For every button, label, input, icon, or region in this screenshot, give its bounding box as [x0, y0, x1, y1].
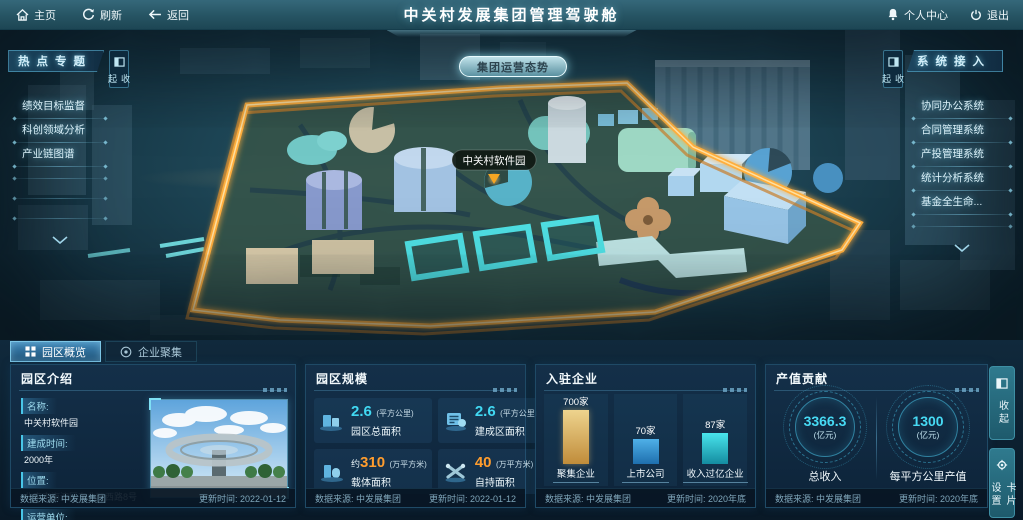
divider — [13, 118, 107, 119]
bar-group: 70家 上市公司 — [614, 394, 678, 486]
tower-icon — [319, 460, 345, 484]
gear-icon — [996, 458, 1008, 476]
bar-value-label: 70家 — [635, 423, 655, 437]
hot-topics-expand-button[interactable] — [10, 228, 110, 249]
gauge-total-revenue: 3366.3 (亿元) 总收入 — [774, 391, 876, 486]
divider — [912, 118, 1012, 119]
hot-topic-item[interactable]: 产业链图谱 — [10, 144, 110, 165]
update-time: 更新时间: 2022-01-12 — [429, 492, 516, 505]
divider — [912, 142, 1012, 143]
back-arrow-icon — [148, 9, 162, 20]
map-marker-label: 中关村软件园 — [463, 154, 526, 167]
system-item[interactable]: 合同管理系统 — [909, 120, 1015, 141]
power-icon — [970, 9, 982, 21]
enterprise-bar-chart: 700家 聚集企业 70家 上市公司 87家 收入过亿企业 — [544, 394, 747, 486]
panel-footer: 数据来源: 中发展集团 更新时间: 2020年底 — [766, 488, 987, 507]
home-button[interactable]: 主页 — [16, 7, 56, 23]
cards-collapse-button[interactable]: 收起 — [989, 366, 1015, 440]
update-time: 更新时间: 2020年底 — [667, 492, 746, 505]
update-time: 更新时间: 2022-01-12 — [199, 492, 286, 505]
collapse-panel-icon — [888, 54, 899, 72]
bell-icon — [887, 8, 899, 21]
data-source: 数据来源: 中发展集团 — [545, 492, 631, 505]
panel-footer: 数据来源: 中发展集团 更新时间: 2020年底 — [536, 488, 755, 507]
system-access-expand-button[interactable] — [909, 236, 1015, 257]
hot-topic-item[interactable]: 科创领域分析 — [10, 120, 110, 141]
refresh-button[interactable]: 刷新 — [82, 7, 122, 23]
field-label: 名称: — [21, 398, 57, 414]
group-operation-button[interactable]: 集团运营态势 — [459, 56, 567, 77]
collapse-panel-icon — [114, 54, 125, 72]
bar-group: 700家 聚集企业 — [544, 394, 608, 486]
logout-button[interactable]: 退出 — [970, 7, 1009, 23]
refresh-icon — [82, 8, 95, 21]
stat-total-area: 2.6 (平方公里) 园区总面积 — [314, 398, 432, 443]
top-bar: 中关村发展集团管理驾驶舱 主页 刷新 返回 个人中心 退出 — [0, 0, 1023, 30]
grid-icon — [25, 346, 36, 357]
gauge-ring: 3366.3 (亿元) — [795, 397, 855, 457]
card-settings-button[interactable]: 卡片设置 — [989, 448, 1015, 518]
park-intro-panel: 园区介绍 名称: 中关村软件园 建成时间: 2000年 位置: 北京市海淀区东北… — [10, 364, 296, 508]
gauge-ring: 1300 (亿元) — [898, 397, 958, 457]
collapse-panel-icon — [996, 376, 1008, 394]
divider — [13, 166, 107, 167]
tab-bar: 园区概览 企业聚集 — [10, 341, 197, 362]
hot-topic-item[interactable]: 绩效目标监督 — [10, 96, 110, 117]
panel-title: 园区规模 — [306, 365, 525, 387]
park-scale-panel: 园区规模 2.6 (平方公里) 园区总面积 2.6 (平方公里) 建成区面积 — [305, 364, 526, 508]
bar-category-label: 收入过亿企业 — [683, 466, 748, 483]
header-divider — [314, 390, 517, 391]
divider — [13, 142, 107, 143]
empty-slot — [10, 168, 110, 188]
bottom-dashboard: 园区概览 企业聚集 园区介绍 名称: 中关村软件园 建成时间: 2000年 位置… — [0, 340, 1023, 520]
output-value-panel: 产值贡献 3366.3 (亿元) 总收入 1300 (亿元) 每平方公里产值 — [765, 364, 988, 508]
home-icon — [16, 9, 29, 21]
back-button[interactable]: 返回 — [148, 7, 189, 23]
title-decoration — [387, 30, 637, 37]
park-photo — [150, 399, 288, 498]
data-source: 数据来源: 中发展集团 — [775, 492, 861, 505]
system-access-panel: 收起 系统接入 协同办公系统 合同管理系统 产投管理系统 统计分析系统 基金全生… — [883, 50, 1017, 257]
system-item[interactable]: 产投管理系统 — [909, 144, 1015, 165]
divider — [912, 190, 1012, 191]
system-access-title: 系统接入 — [907, 50, 1003, 72]
city-map-3d[interactable]: 中关村软件园 集团运营态势 — [0, 30, 1023, 340]
empty-slot — [10, 188, 110, 208]
gauge-output-per-sqkm: 1300 (亿元) 每平方公里产值 — [877, 391, 979, 486]
bar — [702, 433, 728, 464]
tab-enterprise-cluster[interactable]: 企业聚集 — [105, 341, 197, 362]
hot-topics-collapse-button[interactable]: 收起 — [109, 50, 129, 88]
document-icon — [443, 409, 469, 433]
bar-category-label: 上市公司 — [622, 466, 668, 483]
system-access-collapse-button[interactable]: 收起 — [883, 50, 903, 88]
bar — [563, 410, 589, 464]
bar — [633, 439, 659, 464]
enterprises-panel: 入驻企业 700家 聚集企业 70家 上市公司 87家 收入过亿企业 — [535, 364, 756, 508]
field-label: 建成时间: — [21, 435, 76, 451]
field-value: 2000年 — [24, 453, 150, 466]
hot-topics-panel: 热点专题 收起 绩效目标监督 科创领域分析 产业链图谱 — [8, 50, 136, 249]
header-divider — [19, 390, 287, 391]
header-divider — [544, 390, 747, 391]
bar-value-label: 87家 — [705, 417, 725, 431]
radar-icon — [120, 346, 132, 358]
panel-title: 产值贡献 — [766, 365, 987, 387]
personal-center-button[interactable]: 个人中心 — [887, 7, 948, 23]
field-value: 中关村软件园 — [24, 416, 150, 429]
hot-topics-title: 热点专题 — [8, 50, 104, 72]
update-time: 更新时间: 2020年底 — [899, 492, 978, 505]
bar-value-label: 700家 — [563, 394, 588, 408]
panel-footer: 数据来源: 中发展集团 更新时间: 2022-01-12 — [306, 488, 525, 507]
panel-footer: 数据来源: 中发展集团 更新时间: 2022-01-12 — [11, 488, 295, 507]
bar-category-label: 聚集企业 — [553, 466, 599, 483]
empty-slot — [10, 208, 110, 228]
chevron-down-icon — [52, 236, 68, 244]
system-item[interactable]: 统计分析系统 — [909, 168, 1015, 189]
data-source: 数据来源: 中发展集团 — [315, 492, 401, 505]
data-source: 数据来源: 中发展集团 — [20, 492, 106, 505]
system-item[interactable]: 基金全生命... — [909, 192, 1015, 213]
field-label: 运营单位: — [21, 509, 76, 520]
empty-slot — [909, 216, 1015, 236]
tab-park-overview[interactable]: 园区概览 — [10, 341, 101, 362]
panel-title: 入驻企业 — [536, 365, 755, 387]
panel-title: 园区介绍 — [11, 365, 295, 387]
stat-built-area: 2.6 (平方公里) 建成区面积 — [438, 398, 543, 443]
chevron-down-icon — [954, 244, 970, 252]
bar-group: 87家 收入过亿企业 — [683, 394, 747, 486]
field-label: 位置: — [21, 472, 57, 488]
divider — [912, 166, 1012, 167]
buildings-icon — [319, 409, 345, 433]
crossed-tools-icon — [443, 460, 469, 484]
system-item[interactable]: 协同办公系统 — [909, 96, 1015, 117]
divider — [912, 214, 1012, 215]
